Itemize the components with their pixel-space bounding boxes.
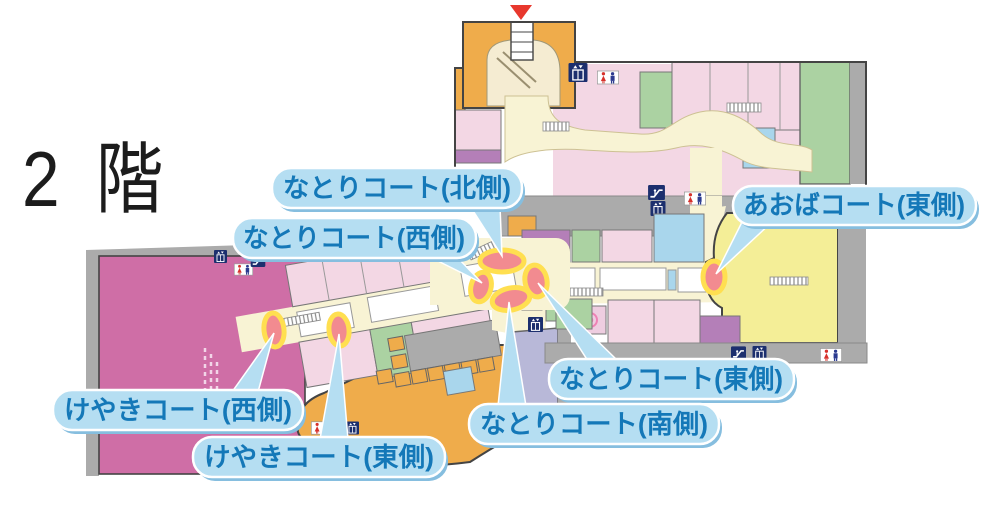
label-text: なとりコート(南側) xyxy=(480,409,708,439)
escalator-icon xyxy=(731,346,746,359)
restroom-icon xyxy=(820,348,841,361)
floor-title: 2 階 xyxy=(22,135,172,223)
escalator-icon xyxy=(648,185,665,200)
room xyxy=(654,214,704,262)
label-text: けやきコート(西側) xyxy=(64,395,292,425)
restroom-icon xyxy=(234,264,252,275)
bench-icon xyxy=(727,103,761,112)
elevator-icon xyxy=(569,63,588,82)
label-natori-west[interactable]: なとりコート(西側) xyxy=(233,218,479,262)
label-text: あおばコート(東側) xyxy=(743,190,965,220)
label-text: けやきコート(東側) xyxy=(204,442,434,472)
label-natori-north[interactable]: なとりコート(北側) xyxy=(272,168,525,212)
label-text: なとりコート(北側) xyxy=(283,173,511,203)
room xyxy=(455,150,501,163)
label-keyaki-west[interactable]: けやきコート(西側) xyxy=(53,390,306,434)
bench-icon xyxy=(770,277,808,285)
kiosk xyxy=(668,270,676,290)
label-aoba-east[interactable]: あおばコート(東側) xyxy=(733,186,979,229)
label-text: なとりコート(東側) xyxy=(559,364,783,394)
room xyxy=(572,230,600,262)
restroom-icon xyxy=(684,192,705,205)
room xyxy=(608,300,654,344)
entrance-arrow-icon xyxy=(510,5,532,20)
room xyxy=(654,300,700,344)
marker-keyaki-west[interactable] xyxy=(262,312,285,348)
kiosk xyxy=(600,268,666,290)
elevator-icon xyxy=(214,250,227,263)
wall xyxy=(86,250,99,476)
label-natori-east[interactable]: なとりコート(東側) xyxy=(549,359,797,403)
floor-map-page: なとりコート(北側) なとりコート(西側) あおばコート(東側) なとりコート(… xyxy=(0,0,1000,513)
room xyxy=(640,72,672,128)
bench-icon xyxy=(543,122,569,131)
label-keyaki-east[interactable]: けやきコート(東側) xyxy=(193,437,448,481)
room xyxy=(443,367,475,395)
mall-floor-map: なとりコート(北側) なとりコート(西側) あおばコート(東側) なとりコート(… xyxy=(0,0,1000,513)
wall xyxy=(850,62,866,184)
room xyxy=(700,316,740,344)
label-text: なとりコート(西側) xyxy=(243,223,465,253)
wall xyxy=(838,213,866,363)
stairs-icon xyxy=(511,22,533,60)
elevator-icon xyxy=(528,317,543,332)
restroom-icon xyxy=(597,71,618,84)
label-natori-south[interactable]: なとりコート(南側) xyxy=(469,404,722,448)
room xyxy=(602,230,652,262)
room xyxy=(455,110,501,150)
